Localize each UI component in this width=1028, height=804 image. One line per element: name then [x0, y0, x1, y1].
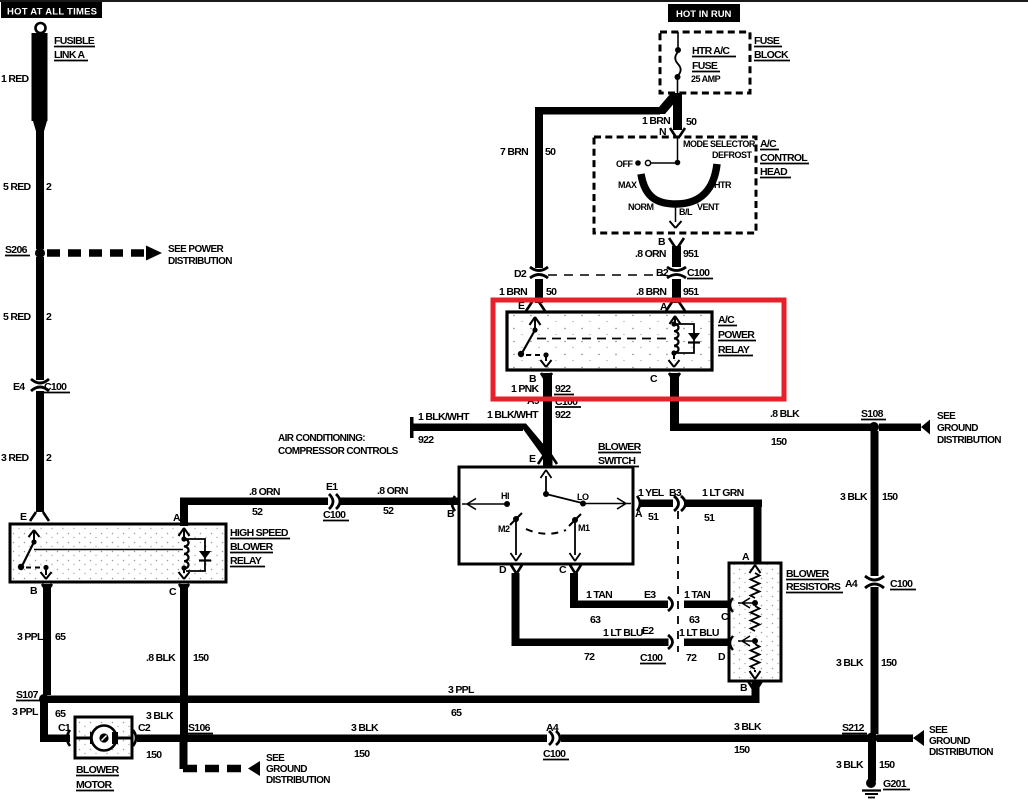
svg-text:3 BLK: 3 BLK [840, 491, 868, 503]
svg-text:M2: M2 [498, 524, 510, 534]
svg-text:HI: HI [501, 491, 509, 501]
svg-text:AIR CONDITIONING:: AIR CONDITIONING: [278, 433, 365, 444]
svg-text:2: 2 [46, 311, 52, 323]
svg-text:HOT AT ALL TIMES: HOT AT ALL TIMES [7, 7, 97, 18]
svg-text:51: 51 [704, 512, 715, 524]
svg-text:65: 65 [451, 707, 462, 719]
svg-text:150: 150 [146, 749, 162, 761]
svg-text:150: 150 [882, 491, 898, 503]
svg-text:65: 65 [55, 708, 66, 720]
svg-text:3 PPL: 3 PPL [448, 684, 475, 696]
svg-text:M1: M1 [578, 523, 590, 533]
svg-text:C100: C100 [44, 381, 67, 393]
svg-text:GROUND: GROUND [937, 423, 978, 434]
svg-text:922: 922 [555, 383, 571, 395]
svg-text:1 TAN: 1 TAN [586, 589, 612, 601]
svg-text:G201: G201 [883, 778, 907, 790]
svg-text:.8 BLK: .8 BLK [770, 408, 800, 420]
svg-text:3 BLK: 3 BLK [836, 759, 864, 771]
svg-text:BLOWER: BLOWER [598, 441, 642, 453]
svg-text:A/C: A/C [760, 138, 777, 150]
svg-text:150: 150 [771, 436, 787, 448]
svg-text:SEE: SEE [929, 725, 948, 736]
svg-text:25 AMP: 25 AMP [691, 74, 721, 84]
svg-text:922: 922 [555, 409, 571, 421]
svg-text:C100: C100 [543, 748, 566, 760]
svg-text:E: E [529, 453, 536, 465]
svg-text:A: A [173, 512, 181, 524]
svg-text:BLOWER: BLOWER [230, 541, 274, 553]
svg-text:MAX: MAX [618, 180, 637, 190]
svg-text:S106: S106 [188, 722, 211, 734]
svg-text:FUSE: FUSE [692, 60, 718, 72]
svg-text:SEE POWER: SEE POWER [168, 244, 225, 255]
svg-text:C: C [559, 564, 567, 576]
svg-text:1 BRN: 1 BRN [642, 115, 670, 127]
svg-text:GROUND: GROUND [266, 764, 307, 775]
svg-text:DEFROST: DEFROST [712, 150, 753, 160]
svg-text:50: 50 [686, 116, 697, 128]
svg-text:150: 150 [354, 748, 370, 760]
svg-text:S108: S108 [861, 408, 884, 420]
svg-text:MOTOR: MOTOR [76, 779, 113, 791]
svg-text:150: 150 [879, 759, 895, 771]
svg-text:D: D [499, 564, 507, 576]
svg-text:.8 ORN: .8 ORN [249, 486, 280, 498]
svg-text:150: 150 [734, 744, 750, 756]
svg-text:B: B [30, 585, 38, 597]
svg-text:RELAY: RELAY [718, 344, 750, 356]
svg-text:.8 BLK: .8 BLK [146, 652, 176, 664]
svg-text:D: D [718, 651, 726, 663]
svg-text:63: 63 [689, 614, 700, 626]
svg-text:BLOWER: BLOWER [786, 568, 830, 580]
svg-text:7 BRN: 7 BRN [500, 146, 528, 158]
svg-text:72: 72 [686, 652, 697, 664]
svg-text:DISTRIBUTION: DISTRIBUTION [937, 435, 1001, 446]
svg-text:E3: E3 [644, 589, 656, 601]
svg-text:HEAD: HEAD [760, 166, 788, 178]
svg-text:SEE: SEE [266, 753, 285, 764]
svg-text:E: E [20, 511, 27, 523]
svg-text:C: C [650, 373, 658, 385]
svg-text:2: 2 [46, 452, 52, 464]
svg-text:HOT IN RUN: HOT IN RUN [676, 9, 732, 20]
svg-text:65: 65 [55, 631, 66, 643]
svg-text:951: 951 [683, 248, 699, 260]
svg-text:C: C [169, 586, 177, 598]
svg-text:1 BLK/WHT: 1 BLK/WHT [418, 411, 470, 423]
svg-text:5 RED: 5 RED [3, 181, 32, 193]
svg-text:51: 51 [648, 511, 659, 523]
svg-text:3 PPL: 3 PPL [12, 706, 39, 718]
svg-text:5 RED: 5 RED [3, 311, 32, 323]
svg-text:1 TAN: 1 TAN [684, 589, 710, 601]
svg-text:LO: LO [577, 492, 589, 502]
svg-text:S212: S212 [842, 722, 865, 734]
svg-text:S107: S107 [16, 689, 39, 701]
svg-text:50: 50 [546, 286, 557, 298]
svg-text:63: 63 [590, 614, 601, 626]
svg-text:C100: C100 [890, 578, 913, 590]
svg-text:52: 52 [252, 506, 263, 518]
svg-text:1 LT GRN: 1 LT GRN [702, 487, 744, 499]
svg-text:A/C: A/C [718, 314, 735, 326]
svg-text:1 YEL: 1 YEL [638, 487, 665, 499]
svg-text:1 BLK/WHT: 1 BLK/WHT [487, 409, 539, 421]
svg-text:1 RED: 1 RED [1, 73, 30, 85]
svg-text:A4: A4 [845, 578, 858, 590]
svg-text:E2: E2 [642, 625, 654, 637]
svg-text:1 BRN: 1 BRN [499, 286, 527, 298]
svg-text:1 LT BLU: 1 LT BLU [603, 627, 643, 639]
svg-text:C2: C2 [138, 722, 151, 734]
svg-text:951: 951 [683, 286, 699, 298]
svg-text:B/L: B/L [679, 207, 693, 217]
svg-text:2: 2 [46, 181, 52, 193]
svg-text:.8 BRN: .8 BRN [636, 286, 666, 298]
svg-text:COMPRESSOR CONTROLS: COMPRESSOR CONTROLS [278, 446, 399, 457]
svg-text:150: 150 [193, 652, 209, 664]
svg-text:HTR: HTR [714, 180, 732, 190]
svg-text:B: B [740, 682, 748, 694]
svg-text:C100: C100 [687, 267, 710, 279]
svg-text:E4: E4 [13, 381, 25, 393]
svg-text:GROUND: GROUND [929, 736, 970, 747]
svg-text:.8 ORN: .8 ORN [635, 248, 666, 260]
svg-text:3 PPL: 3 PPL [17, 631, 44, 643]
svg-text:MODE SELECTOR: MODE SELECTOR [683, 139, 756, 149]
svg-text:C100: C100 [640, 652, 663, 664]
svg-text:HIGH SPEED: HIGH SPEED [230, 527, 289, 539]
svg-text:3 RED: 3 RED [1, 452, 30, 464]
svg-text:3 BLK: 3 BLK [836, 657, 864, 669]
svg-text:S206: S206 [5, 244, 28, 256]
svg-text:LINK A: LINK A [54, 49, 86, 61]
svg-text:A: A [742, 551, 750, 563]
svg-text:B: B [658, 236, 666, 248]
svg-text:E1: E1 [326, 481, 338, 493]
svg-text:C100: C100 [323, 509, 346, 521]
svg-text:3 BLK: 3 BLK [351, 722, 379, 734]
svg-text:RELAY: RELAY [230, 555, 262, 567]
svg-text:OFF: OFF [616, 159, 633, 169]
svg-text:SEE: SEE [937, 411, 956, 422]
svg-text:50: 50 [545, 146, 556, 158]
svg-text:NORM: NORM [628, 202, 654, 212]
svg-text:VENT: VENT [697, 202, 720, 212]
svg-text:POWER: POWER [718, 329, 755, 341]
svg-text:SWITCH: SWITCH [598, 455, 635, 467]
svg-text:DISTRIBUTION: DISTRIBUTION [266, 775, 330, 786]
svg-text:1 LT BLU: 1 LT BLU [679, 627, 719, 639]
svg-text:CONTROL: CONTROL [760, 152, 808, 164]
svg-text:72: 72 [584, 651, 595, 663]
svg-text:150: 150 [881, 657, 897, 669]
svg-text:RESISTORS: RESISTORS [786, 581, 841, 593]
svg-text:.8 ORN: .8 ORN [377, 485, 408, 497]
svg-text:DISTRIBUTION: DISTRIBUTION [168, 256, 232, 267]
svg-text:FUSIBLE: FUSIBLE [54, 35, 95, 47]
svg-text:FUSE: FUSE [754, 35, 780, 47]
svg-text:922: 922 [418, 434, 434, 446]
svg-text:BLOWER: BLOWER [76, 764, 120, 776]
svg-text:52: 52 [383, 505, 394, 517]
svg-text:3 BLK: 3 BLK [146, 710, 174, 722]
svg-text:D2: D2 [514, 268, 527, 280]
svg-text:1 PNK: 1 PNK [511, 383, 540, 395]
svg-text:HTR A/C: HTR A/C [692, 45, 730, 57]
svg-text:3 BLK: 3 BLK [734, 721, 762, 733]
svg-text:BLOCK: BLOCK [754, 49, 789, 61]
svg-text:DISTRIBUTION: DISTRIBUTION [929, 747, 993, 758]
